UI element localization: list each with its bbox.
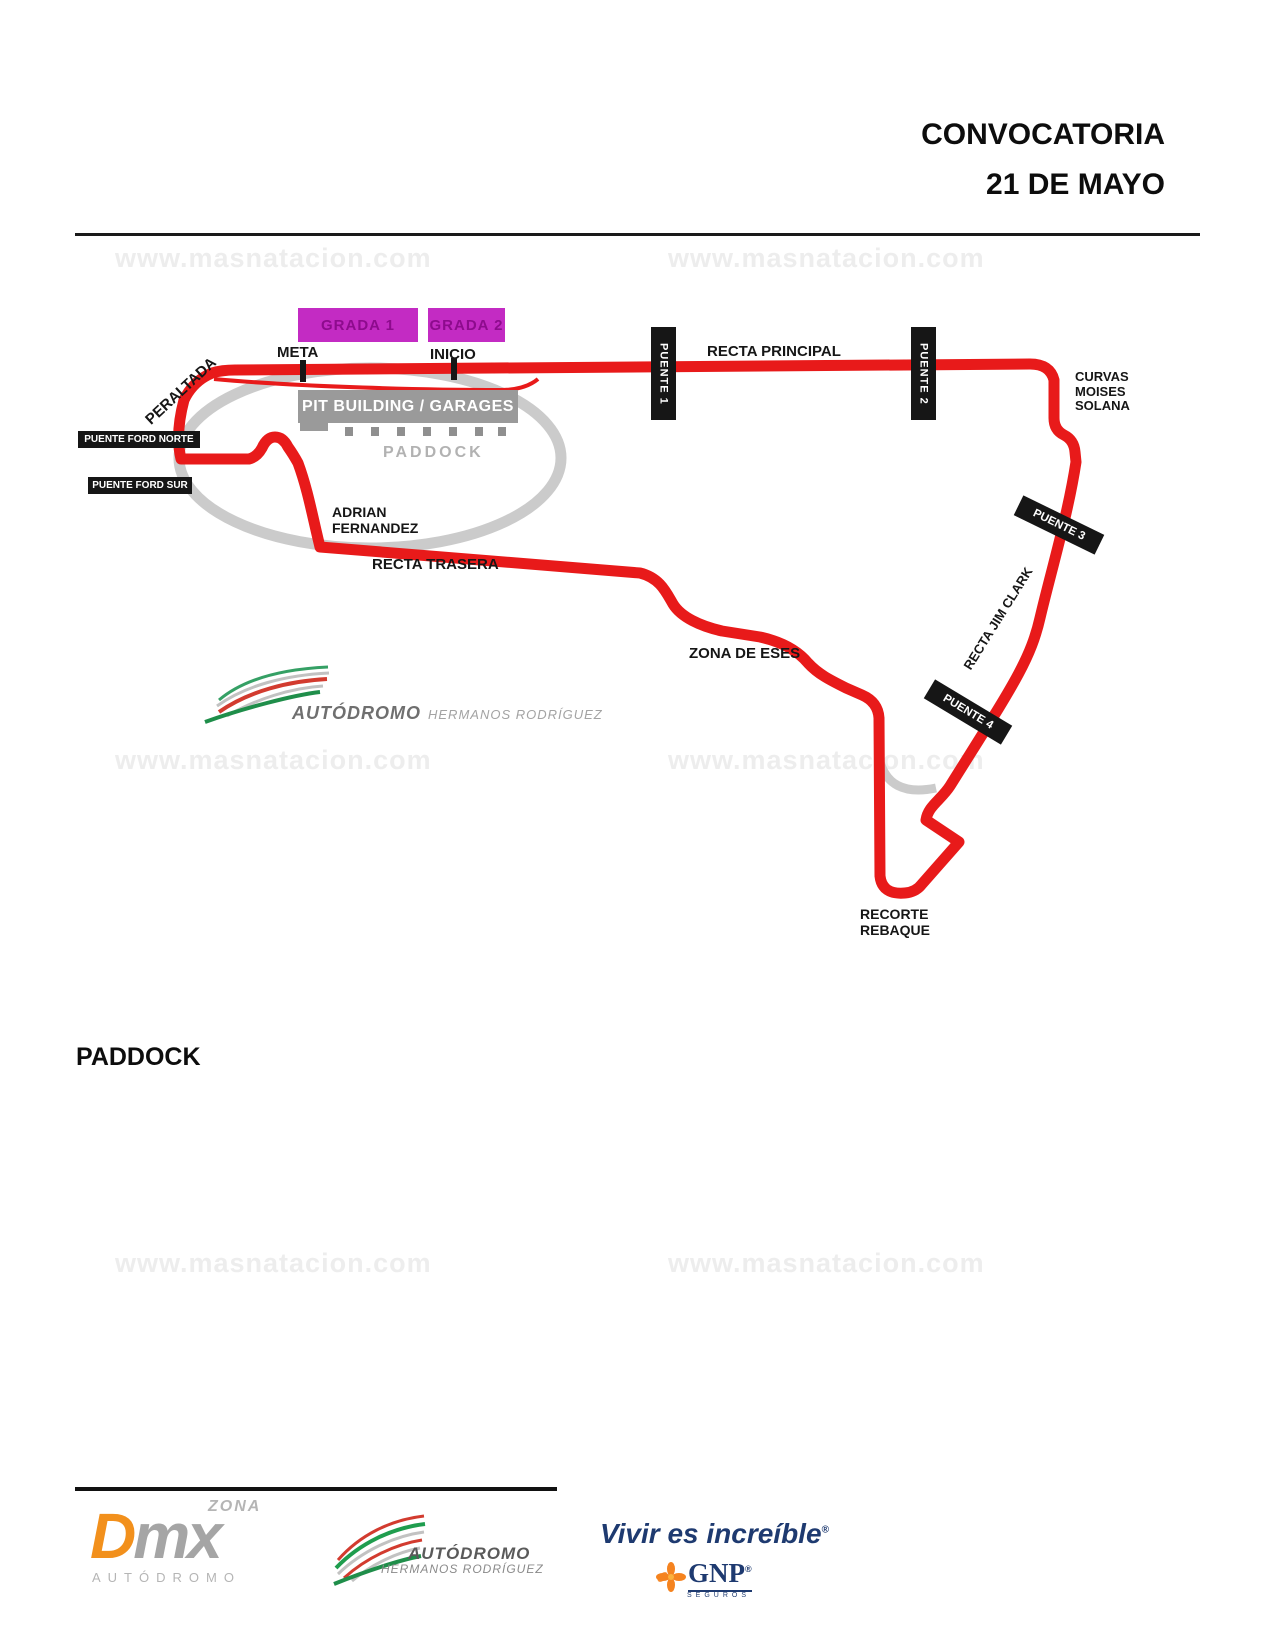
recorte-line-1: RECORTE [860, 906, 930, 922]
footer-rule [75, 1487, 557, 1491]
meta-line-tick [300, 360, 306, 382]
grandstand-1-box: GRADA 1 [298, 308, 418, 342]
recorte-rebaque-label: RECORTE REBAQUE [860, 906, 930, 938]
grandstand-2-box: GRADA 2 [428, 308, 505, 342]
dmx-autodromo-label: AUTÓDROMO [92, 1570, 241, 1585]
puente-ford-norte-label: PUENTE FORD NORTE [84, 434, 193, 445]
puente-ford-sur-box: PUENTE FORD SUR [88, 477, 192, 494]
gnp-flower-icon [656, 1562, 686, 1592]
gnp-brand-reg: ® [745, 1564, 752, 1574]
dmx-letters-mx: mx [133, 1500, 220, 1572]
gnp-slogan-reg: ® [822, 1525, 829, 1536]
pit-building-box: PIT BUILDING / GARAGES [298, 390, 518, 423]
recta-principal-label: RECTA PRINCIPAL [707, 343, 841, 360]
pit-building-label: PIT BUILDING / GARAGES [302, 398, 514, 416]
curvas-moises-solana-label: CURVAS MOISES SOLANA [1075, 370, 1130, 414]
footer-ahr-subtitle: HERMANOS RODRÍGUEZ [381, 1562, 544, 1576]
inicio-label: INICIO [430, 346, 476, 363]
document-page: CONVOCATORIA 21 DE MAYO www.masnatacion.… [0, 0, 1275, 1650]
dmx-letter-d: D [90, 1500, 133, 1572]
garage-ticks [345, 427, 506, 436]
race-track-path [179, 364, 1076, 893]
adrian-line-2: FERNANDEZ [332, 520, 418, 536]
recta-trasera-label: RECTA TRASERA [372, 556, 499, 573]
track-map-svg [0, 0, 1275, 1650]
pit-building-tab [300, 423, 328, 431]
grandstand-2-label: GRADA 2 [430, 317, 504, 334]
puente-1-label: PUENTE 1 [658, 343, 670, 405]
puente-1-box: PUENTE 1 [651, 327, 676, 420]
puente-ford-sur-label: PUENTE FORD SUR [92, 480, 188, 491]
rebaque-bypass-gray-path [879, 758, 936, 790]
puente-2-box: PUENTE 2 [911, 327, 936, 420]
gnp-brand-text: GNP [688, 1558, 745, 1588]
puente-ford-norte-box: PUENTE FORD NORTE [78, 431, 200, 448]
paddock-map-label: PADDOCK [383, 444, 484, 462]
curvas-line-3: SOLANA [1075, 399, 1130, 414]
footer-ahr-name: AUTÓDROMO [408, 1544, 530, 1564]
map-logo-subtitle: HERMANOS RODRÍGUEZ [428, 707, 603, 722]
map-logo-name: AUTÓDROMO [292, 703, 421, 724]
curvas-line-2: MOISES [1075, 385, 1130, 400]
dmx-logo: Dmx [90, 1504, 220, 1568]
gnp-slogan: Vivir es increíble® [600, 1518, 829, 1550]
gnp-seguros-label: SEGUROS [687, 1592, 750, 1599]
grandstand-1-label: GRADA 1 [321, 317, 395, 334]
meta-label: META [277, 344, 318, 361]
gnp-slogan-text: Vivir es increíble [600, 1518, 822, 1549]
adrian-fernandez-label: ADRIAN FERNANDEZ [332, 504, 418, 536]
recorte-line-2: REBAQUE [860, 922, 930, 938]
gnp-wordmark: GNP® [688, 1558, 752, 1592]
paddock-section-heading: PADDOCK [76, 1043, 201, 1072]
zona-de-eses-label: ZONA DE ESES [689, 645, 800, 662]
curvas-line-1: CURVAS [1075, 370, 1130, 385]
puente-2-label: PUENTE 2 [918, 343, 930, 405]
adrian-line-1: ADRIAN [332, 504, 418, 520]
